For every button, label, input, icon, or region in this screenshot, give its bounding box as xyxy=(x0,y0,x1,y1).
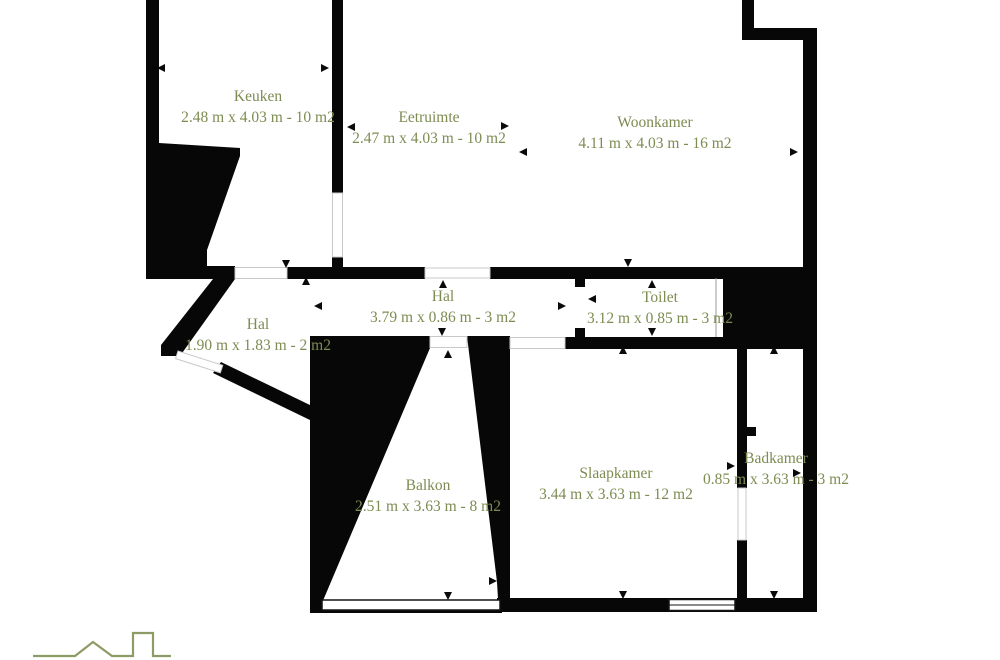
dim-arrow-down-icon xyxy=(444,592,452,600)
wall-badkamer-jamb xyxy=(747,427,756,436)
dim-arrow-left-icon xyxy=(314,302,322,310)
wall-left-kitchen-block xyxy=(146,0,240,279)
room-name: Woonkamer xyxy=(578,112,731,133)
room-dimensions: 2.51 m x 3.63 m - 8 m2 xyxy=(355,496,501,517)
house-logo-icon xyxy=(33,633,171,656)
room-name: Keuken xyxy=(181,86,335,107)
room-name: Toilet xyxy=(587,287,733,308)
room-dimensions: 3.79 m x 0.86 m - 3 m2 xyxy=(370,307,516,328)
dim-arrow-left-icon xyxy=(519,148,527,156)
room-dimensions: 2.48 m x 4.03 m - 10 m2 xyxy=(181,107,335,128)
door-divider-eetruimte xyxy=(333,193,343,257)
room-label-eetruimte: Eetruimte 2.47 m x 4.03 m - 10 m2 xyxy=(352,107,506,149)
wall-badkamer-left-lower xyxy=(737,540,747,599)
room-dimensions: 1.90 m x 1.83 m - 2 m2 xyxy=(185,335,331,356)
dim-arrow-right-icon xyxy=(790,148,798,156)
dim-arrow-down-icon xyxy=(770,591,778,599)
wall-toilet-jamb-bottom xyxy=(575,328,585,337)
room-name: Hal xyxy=(370,286,516,307)
floorplan-canvas: Keuken 2.48 m x 4.03 m - 10 m2 Eetruimte… xyxy=(0,0,1000,660)
balkon-railing xyxy=(322,600,500,610)
wall-corridor-top-left xyxy=(287,267,425,279)
room-dimensions: 3.44 m x 3.63 m - 12 m2 xyxy=(539,484,693,505)
door-balkon xyxy=(430,337,467,348)
room-name: Slaapkamer xyxy=(539,463,693,484)
room-label-hal-corridor: Hal 3.79 m x 0.86 m - 3 m2 xyxy=(370,286,516,328)
wall-entry-diagonal-lower xyxy=(213,362,312,421)
door-badkamer xyxy=(738,488,746,540)
dim-arrow-up-icon xyxy=(444,350,452,358)
dim-arrow-right-icon xyxy=(558,302,566,310)
wall-slaapkamer-top xyxy=(565,337,803,349)
room-name: Balkon xyxy=(355,475,501,496)
room-name: Eetruimte xyxy=(352,107,506,128)
room-label-toilet: Toilet 3.12 m x 0.85 m - 3 m2 xyxy=(587,287,733,329)
room-label-woonkamer: Woonkamer 4.11 m x 4.03 m - 16 m2 xyxy=(578,112,731,154)
room-dimensions: 3.12 m x 0.85 m - 3 m2 xyxy=(587,308,733,329)
room-label-slaapkamer: Slaapkamer 3.44 m x 3.63 m - 12 m2 xyxy=(539,463,693,505)
wall-bottom-exterior xyxy=(497,598,817,612)
room-name: Hal xyxy=(185,314,331,335)
dim-arrow-down-icon xyxy=(648,328,656,336)
door-slaapkamer xyxy=(510,338,565,349)
room-name: Badkamer xyxy=(703,448,849,469)
wall-right-exterior xyxy=(803,28,817,612)
dim-arrow-down-icon xyxy=(282,260,290,268)
door-keuken xyxy=(235,268,287,279)
dim-arrow-right-icon xyxy=(489,577,497,585)
room-label-hal-entree: Hal 1.90 m x 1.83 m - 2 m2 xyxy=(185,314,331,356)
room-label-keuken: Keuken 2.48 m x 4.03 m - 10 m2 xyxy=(181,86,335,128)
wall-toilet-block xyxy=(723,267,803,337)
dim-arrow-down-icon xyxy=(624,259,632,267)
opening-eetruimte-hal xyxy=(425,268,490,278)
room-label-balkon: Balkon 2.51 m x 3.63 m - 8 m2 xyxy=(355,475,501,517)
room-dimensions: 0.85 m x 3.63 m - 3 m2 xyxy=(703,469,849,490)
dim-arrow-down-icon xyxy=(619,591,627,599)
room-label-badkamer: Badkamer 0.85 m x 3.63 m - 3 m2 xyxy=(703,448,849,490)
room-dimensions: 4.11 m x 4.03 m - 16 m2 xyxy=(578,133,731,154)
wall-balkon-right-wedge xyxy=(467,336,510,599)
wall-toilet-jamb-top xyxy=(575,278,585,287)
room-dimensions: 2.47 m x 4.03 m - 10 m2 xyxy=(352,128,506,149)
dim-arrow-right-icon xyxy=(321,64,329,72)
dim-arrow-down-icon xyxy=(438,328,446,336)
floorplan-drawing xyxy=(0,0,1000,660)
